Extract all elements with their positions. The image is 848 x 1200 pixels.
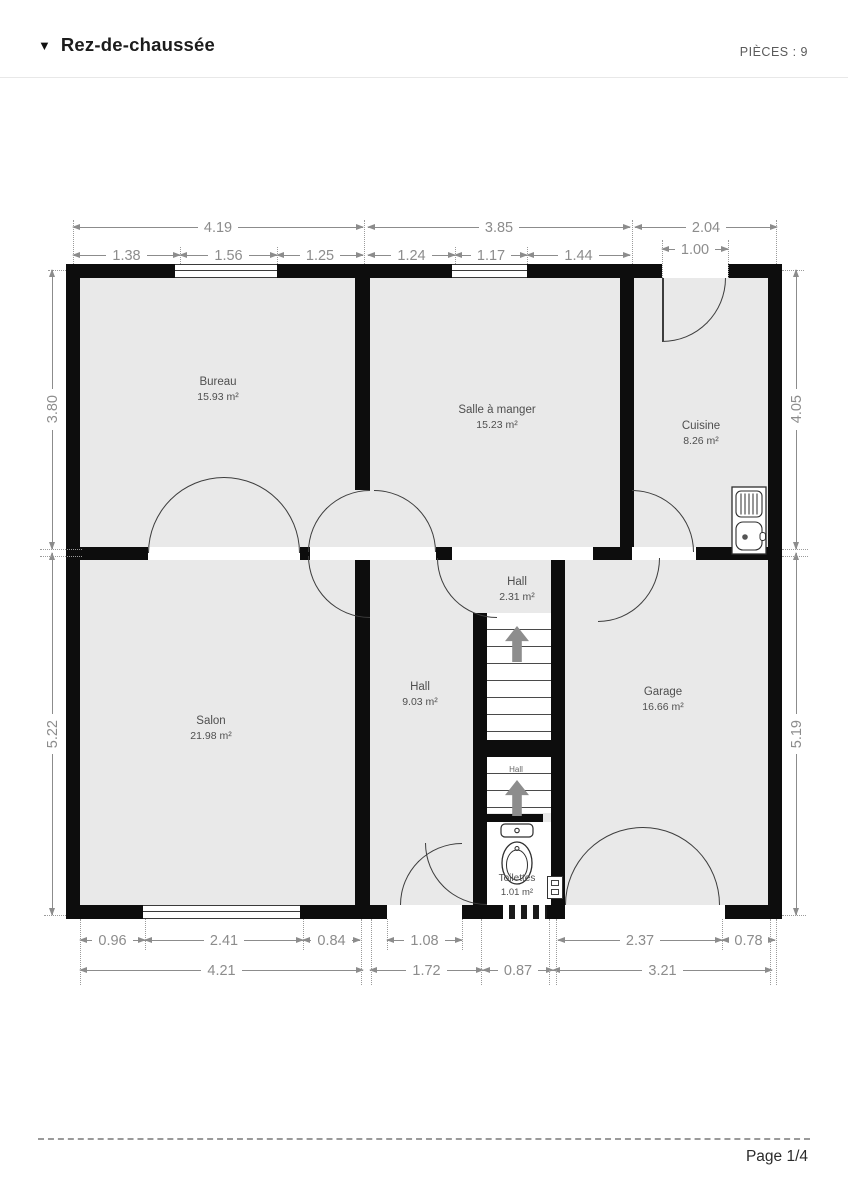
extension-line	[361, 919, 362, 985]
extension-line	[770, 919, 771, 985]
extension-line	[40, 549, 82, 550]
wall	[551, 560, 565, 905]
room-label-cuisine: Cuisine 8.26 m²	[682, 418, 720, 449]
dimension: 1.56	[180, 249, 277, 262]
dimension-label: 3.80	[45, 389, 61, 429]
dimension: 4.21	[80, 964, 363, 977]
extension-line	[387, 919, 388, 950]
dimension: 1.08	[387, 934, 462, 947]
extension-line	[277, 247, 278, 264]
room-name: Salon	[190, 713, 231, 729]
floor-title: Rez-de-chaussée	[61, 34, 215, 56]
stairs-landing-wall	[483, 740, 553, 757]
dimension: 1.25	[277, 249, 363, 262]
room-label-toilettes: Toilettes 1.01 m²	[499, 872, 536, 899]
wall	[527, 264, 662, 278]
rooms-count-label: PIÈCES :	[740, 45, 797, 59]
wall	[66, 264, 80, 919]
wall	[462, 905, 503, 919]
room-area: 8.26 m²	[682, 434, 720, 449]
extension-line	[662, 240, 663, 278]
dimension-label: 1.17	[471, 248, 511, 264]
room-name: Garage	[642, 684, 683, 700]
dimension: 3.21	[553, 964, 772, 977]
room-name: Toilettes	[499, 872, 536, 886]
extension-line	[782, 915, 806, 916]
room-label-salle-a-manger: Salle à manger 15.23 m²	[458, 402, 535, 433]
extension-line	[481, 919, 482, 985]
dimension: 5.19	[790, 553, 803, 915]
extension-line	[44, 915, 66, 916]
dimension: 3.80	[46, 270, 59, 549]
wall	[547, 905, 565, 919]
dimension: 2.37	[558, 934, 722, 947]
floor-toggle[interactable]: ▼ Rez-de-chaussée	[38, 34, 215, 56]
dimension: 1.00	[662, 243, 728, 256]
dimension-label: 5.19	[789, 714, 805, 754]
dimension-label: 2.37	[620, 933, 660, 949]
dimension-label: 4.05	[789, 389, 805, 429]
dimension: 0.87	[483, 964, 553, 977]
wall-unit-icon	[547, 876, 563, 899]
dimension: 2.41	[145, 934, 303, 947]
dimension-label: 1.24	[391, 248, 431, 264]
dimension-label: 0.84	[311, 933, 351, 949]
room-label-salon: Salon 21.98 m²	[190, 713, 231, 744]
dimension: 4.19	[73, 221, 363, 234]
room-name: Hall	[499, 574, 535, 590]
extension-line	[782, 549, 808, 550]
dimension-label: 3.21	[642, 963, 682, 979]
dimension: 3.85	[368, 221, 630, 234]
room-area: 15.93 m²	[197, 390, 238, 405]
window	[175, 264, 277, 278]
dimension: 0.84	[303, 934, 360, 947]
door-leaf	[662, 278, 664, 341]
room-area: 16.66 m²	[642, 700, 683, 715]
dimension: 5.22	[46, 553, 59, 915]
room-label-hall-stairs: Hall	[509, 764, 523, 775]
dimension-label: 2.04	[686, 220, 726, 236]
dimension-label: 0.78	[728, 933, 768, 949]
window	[452, 264, 527, 278]
dimension: 1.24	[368, 249, 455, 262]
room-label-bureau: Bureau 15.93 m²	[197, 374, 238, 405]
rooms-count: PIÈCES : 9	[740, 45, 808, 59]
dimension-label: 1.00	[675, 242, 715, 258]
room-name: Cuisine	[682, 418, 720, 434]
dimension: 1.17	[455, 249, 527, 262]
dimension-label: 0.96	[92, 933, 132, 949]
extension-line	[556, 919, 557, 985]
wall	[300, 905, 387, 919]
room-area: 2.31 m²	[499, 590, 535, 605]
window	[143, 905, 300, 919]
extension-line	[776, 919, 777, 985]
wall	[768, 264, 782, 919]
dimension-label: 1.08	[404, 933, 444, 949]
room-name: Salle à manger	[458, 402, 535, 418]
room-area: 15.23 m²	[458, 418, 535, 433]
dimension-label: 4.21	[201, 963, 241, 979]
dimension: 1.38	[73, 249, 180, 262]
extension-line	[455, 247, 456, 264]
wall	[66, 905, 143, 919]
extension-line	[364, 220, 365, 264]
dimension-label: 1.72	[406, 963, 446, 979]
room-name: Hall	[402, 679, 438, 695]
dimension-label: 1.44	[558, 248, 598, 264]
room-name: Hall	[509, 764, 523, 775]
collapse-triangle-icon: ▼	[38, 38, 51, 53]
dimension-label: 1.25	[300, 248, 340, 264]
extension-line	[40, 556, 82, 557]
extension-line	[632, 220, 633, 264]
dimension: 2.04	[635, 221, 777, 234]
extension-line	[782, 270, 804, 271]
dimension: 4.05	[790, 270, 803, 549]
extension-line	[303, 919, 304, 950]
rooms-count-value: 9	[801, 45, 808, 59]
dimension-label: 1.38	[106, 248, 146, 264]
extension-line	[722, 919, 723, 950]
extension-line	[462, 919, 463, 950]
extension-line	[776, 220, 777, 264]
extension-line	[549, 919, 550, 985]
dimension-label: 5.22	[45, 714, 61, 754]
toilettes-vent-window	[503, 905, 547, 919]
extension-line	[527, 247, 528, 264]
room-label-garage: Garage 16.66 m²	[642, 684, 683, 715]
dimension-label: 3.85	[479, 220, 519, 236]
extension-line	[48, 270, 66, 271]
header-divider	[0, 77, 848, 78]
wall	[355, 264, 370, 490]
room-area: 1.01 m²	[499, 886, 536, 899]
extension-line	[80, 919, 81, 985]
dimension-label: 2.41	[204, 933, 244, 949]
extension-line	[371, 919, 372, 985]
room-name: Bureau	[197, 374, 238, 390]
dimension: 0.78	[722, 934, 775, 947]
dimension: 1.44	[527, 249, 630, 262]
extension-line	[73, 220, 74, 264]
room-label-hall-vestibule: Hall 2.31 m²	[499, 574, 535, 605]
dimension-label: 1.56	[208, 248, 248, 264]
extension-line	[782, 556, 808, 557]
page-number: Page 1/4	[746, 1148, 808, 1166]
floor-plan-page: ▼ Rez-de-chaussée PIÈCES : 9	[0, 0, 848, 1200]
extension-line	[145, 919, 146, 950]
extension-line	[728, 240, 729, 278]
dimension-label: 0.87	[498, 963, 538, 979]
room-area: 21.98 m²	[190, 729, 231, 744]
dimension: 0.96	[80, 934, 145, 947]
kitchen-sink-icon	[731, 486, 767, 555]
dimension-label: 4.19	[198, 220, 238, 236]
wall	[725, 905, 782, 919]
footer-divider	[38, 1138, 810, 1140]
room-area: 9.03 m²	[402, 695, 438, 710]
extension-line	[180, 247, 181, 264]
dimension: 1.72	[370, 964, 483, 977]
wall	[66, 264, 175, 278]
room-label-hall: Hall 9.03 m²	[402, 679, 438, 710]
